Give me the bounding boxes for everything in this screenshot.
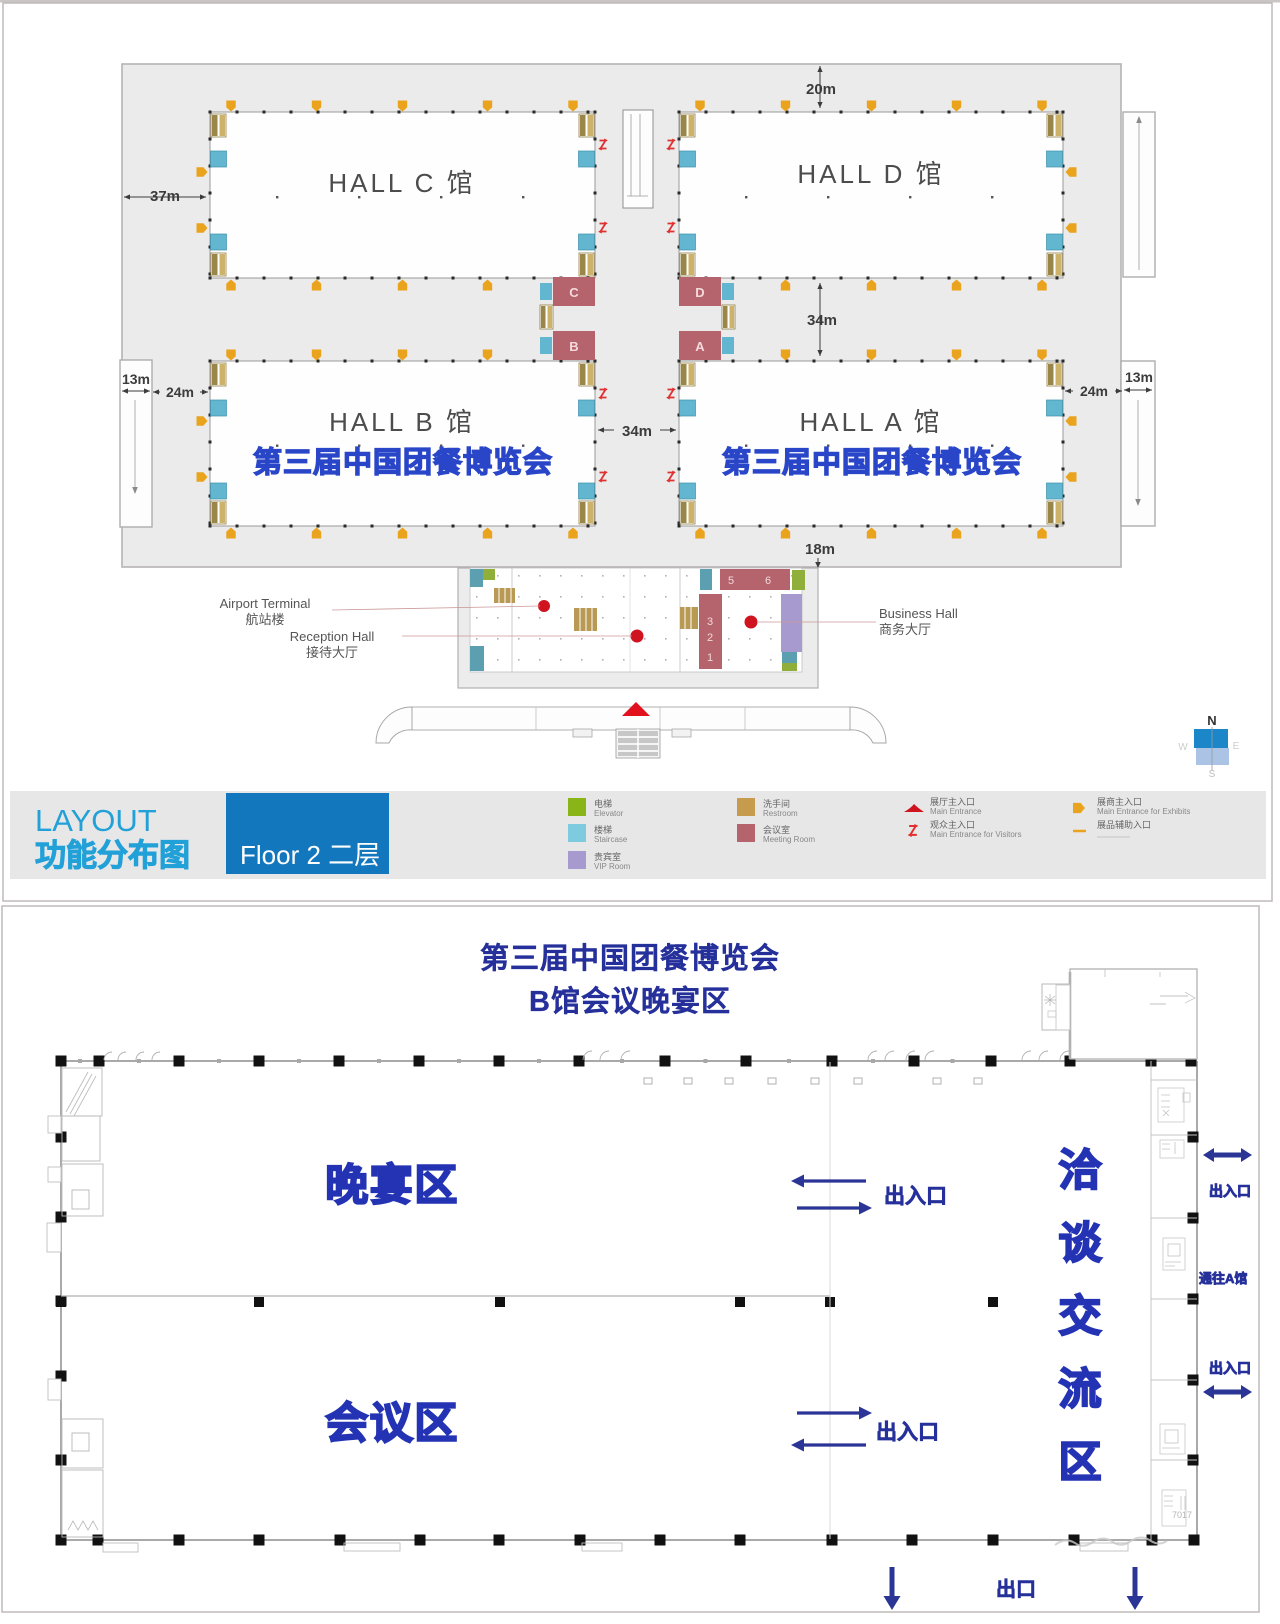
svg-text:LAYOUT: LAYOUT (35, 803, 157, 838)
svg-text:区: 区 (1059, 1439, 1102, 1487)
svg-text:24m: 24m (166, 384, 194, 400)
svg-text:7017: 7017 (1172, 1510, 1192, 1520)
svg-text:出入口: 出入口 (884, 1185, 947, 1208)
svg-text:Reception Hall: Reception Hall (290, 629, 375, 644)
svg-text:HALL D 馆: HALL D 馆 (797, 159, 944, 189)
svg-text:S: S (1209, 769, 1216, 780)
svg-text:通往A馆: 通往A馆 (1199, 1271, 1247, 1286)
svg-text:24m: 24m (1080, 383, 1108, 399)
svg-text:C: C (569, 285, 579, 300)
svg-text:13m: 13m (1125, 369, 1153, 385)
svg-text:洽: 洽 (1059, 1147, 1103, 1195)
svg-text:HALL C 馆: HALL C 馆 (328, 168, 475, 198)
svg-text:Floor 2 二层: Floor 2 二层 (240, 840, 380, 870)
svg-text:电梯: 电梯 (594, 798, 612, 809)
svg-text:5: 5 (728, 575, 734, 587)
svg-text:Restroom: Restroom (763, 809, 798, 818)
svg-text:Main Entrance for Exhibits: Main Entrance for Exhibits (1097, 807, 1190, 816)
svg-text:第三届中国团餐博览会: 第三届中国团餐博览会 (253, 445, 553, 479)
svg-text:A: A (695, 339, 705, 354)
svg-text:晚宴区: 晚宴区 (325, 1161, 459, 1210)
svg-text:6: 6 (765, 575, 771, 587)
svg-text:接待大厅: 接待大厅 (306, 645, 358, 660)
svg-text:D: D (695, 285, 704, 300)
svg-text:Main Entrance for Visitors: Main Entrance for Visitors (930, 830, 1021, 839)
svg-text:贵宾室: 贵宾室 (594, 851, 621, 862)
svg-text:34m: 34m (622, 423, 652, 440)
svg-text:展商主入口: 展商主入口 (1097, 796, 1142, 807)
svg-text:出入口: 出入口 (1209, 1183, 1251, 1199)
svg-text:Airport Terminal: Airport Terminal (220, 596, 311, 611)
svg-text:1: 1 (707, 652, 713, 664)
svg-text:34m: 34m (807, 312, 837, 329)
svg-text:VIP Room: VIP Room (594, 862, 631, 871)
svg-text:13m: 13m (122, 371, 150, 387)
svg-text:20m: 20m (806, 81, 836, 98)
svg-text:交: 交 (1059, 1293, 1102, 1341)
svg-text:HALL A 馆: HALL A 馆 (800, 407, 943, 437)
svg-text:会议室: 会议室 (763, 824, 790, 835)
svg-text:第三届中国团餐博览会: 第三届中国团餐博览会 (480, 941, 780, 975)
svg-text:Business Hall: Business Hall (879, 606, 958, 621)
svg-text:展品辅助入口: 展品辅助入口 (1097, 819, 1151, 830)
svg-text:Staircase: Staircase (594, 835, 628, 844)
svg-text:N: N (1207, 713, 1216, 728)
svg-text:3: 3 (707, 616, 713, 628)
svg-text:洗手间: 洗手间 (763, 798, 790, 809)
svg-text:观众主入口: 观众主入口 (930, 819, 975, 830)
svg-text:Elevator: Elevator (594, 809, 624, 818)
svg-text:楼梯: 楼梯 (594, 824, 612, 835)
svg-text:第三届中国团餐博览会: 第三届中国团餐博览会 (722, 445, 1022, 479)
svg-text:Main Entrance: Main Entrance (930, 807, 982, 816)
svg-text:Meeting Room: Meeting Room (763, 835, 815, 844)
svg-text:出入口: 出入口 (1209, 1360, 1251, 1376)
svg-text:HALL B 馆: HALL B 馆 (329, 407, 475, 437)
svg-text:B馆会议晚宴区: B馆会议晚宴区 (529, 984, 731, 1018)
svg-text:2: 2 (707, 632, 713, 644)
svg-text:商务大厅: 商务大厅 (879, 622, 931, 637)
svg-text:W: W (1178, 742, 1188, 753)
svg-text:展厅主入口: 展厅主入口 (930, 796, 975, 807)
svg-text:B: B (569, 339, 578, 354)
svg-text:E: E (1233, 741, 1240, 752)
svg-text:出口: 出口 (996, 1578, 1036, 1601)
svg-text:流: 流 (1059, 1366, 1102, 1414)
svg-text:谈: 谈 (1059, 1220, 1103, 1268)
svg-text:功能分布图: 功能分布图 (35, 838, 190, 873)
svg-text:18m: 18m (805, 541, 835, 558)
svg-text:航站楼: 航站楼 (245, 612, 284, 627)
svg-text:会议区: 会议区 (325, 1400, 459, 1448)
svg-text:出入口: 出入口 (876, 1421, 939, 1444)
